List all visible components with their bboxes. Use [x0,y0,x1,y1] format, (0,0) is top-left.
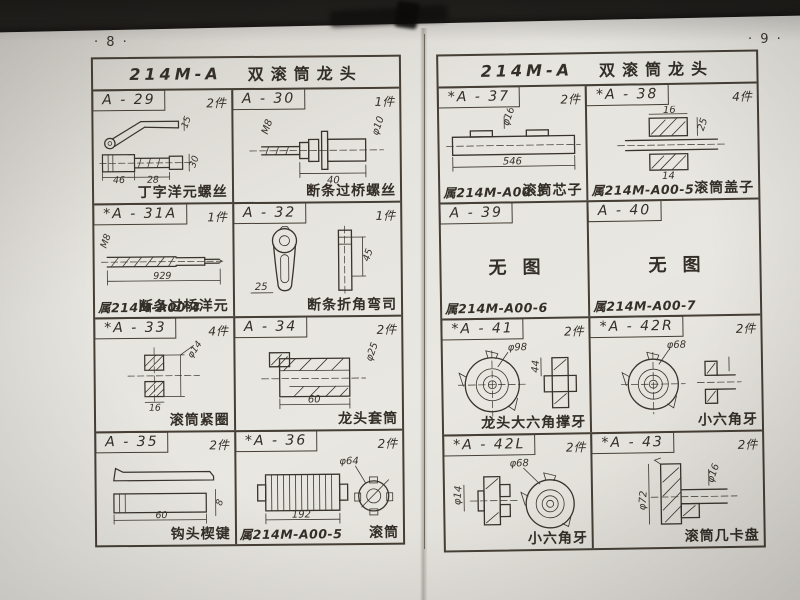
part-drawing-a37: φ16 546 [442,107,583,181]
dim-label: 44 [530,360,542,373]
no-drawing-note: 无图 [441,252,588,280]
part-cell-a34: A - 34 2件 φ25 60 龙头套筒 [235,317,402,430]
part-name: 断条折角弯司 [307,294,397,315]
part-code: *A - 43 [591,432,674,454]
part-cell-a35: A - 35 2件 60 8 钩头楔键 [96,432,237,545]
part-cell-a30: A - 30 1件 M8 φ10 40 断条过桥螺丝 [233,89,400,202]
part-cell-a29: A - 29 2件 15 [93,90,234,203]
part-qty: 2件 [378,435,398,452]
dim-label: φ14 [452,485,464,505]
dim-label: 45 [361,247,376,263]
dim-label: M8 [260,118,275,136]
parts-row-3: *A - 41 2件 φ98 44 龙头大六角撑牙 [442,316,762,437]
part-code: *A - 33 [94,318,177,340]
parts-row-1: *A - 37 2件 φ16 546 属214M-A00-5 滚筒芯子 *A -… [439,84,759,205]
part-name: 断条过桥螺丝 [306,180,396,201]
part-qty: 2件 [737,436,757,453]
dim-label: φ14 [185,339,204,360]
dim-label: 60 [308,394,321,405]
part-cell-a36: *A - 36 2件 φ64 192 属214M-A00-5 [236,431,403,544]
part-code: *A - 42L [443,434,535,456]
dim-label: 15 [179,115,193,130]
part-qty: 2件 [206,94,226,111]
page-title: 214M-A 双滚筒龙头 [93,57,399,92]
part-code: A - 32 [233,202,307,224]
part-drawing-a35: 60 8 [100,453,231,528]
catalog-page-9: 214M-A 双滚筒龙头 *A - 37 2件 φ16 546 属214M-A0… [436,50,766,553]
part-cell-a42l: *A - 42L 2件 φ14 φ68 [444,434,594,550]
part-code: *A - 42R [590,316,684,338]
part-name: 滚筒紧圈 [170,409,230,430]
part-cell-a40: A - 40 无图 属214M-A00-7 [589,200,761,317]
part-cell-a42r: *A - 42R 2件 φ68 [591,316,763,433]
part-name: 小六角牙 [698,409,758,430]
part-qty: 4件 [732,88,752,105]
dim-label: φ16 [705,462,722,484]
dim-label: 46 [113,175,125,186]
part-qty: 2件 [560,90,580,107]
belongs-to-assembly: 属214M-A00-5 [591,179,694,200]
parts-row-3: *A - 33 4件 φ14 16 滚筒紧圈 [95,317,402,434]
part-drawing-a29: 15 46 28 30 [97,111,228,186]
part-qty: 2件 [209,436,229,453]
part-name: 丁字洋元螺丝 [138,181,228,202]
dim-label: φ64 [339,456,358,467]
part-cell-a33: *A - 33 4件 φ14 16 滚筒紧圈 [95,318,236,431]
dim-label: φ98 [508,342,527,353]
part-qty: 4件 [208,322,228,339]
part-qty: 2件 [377,321,397,338]
part-name: 钩头楔键 [171,523,231,544]
part-qty: 2件 [566,438,586,455]
part-code: A - 30 [232,88,306,110]
part-name: 断条过桥洋元 [139,295,229,316]
part-code: A - 35 [95,432,169,454]
title-model-code: 214M-A [481,60,574,80]
part-drawing-a36: φ64 192 [243,452,396,527]
staple-mark [394,1,419,30]
belongs-to-assembly: 属214M-A00-7 [593,295,696,316]
part-qty: 1件 [207,208,227,225]
part-drawing-a30: M8 φ10 40 [241,110,392,185]
dim-label: φ68 [510,458,529,469]
page-number-left: · 8 · [94,35,129,50]
part-qty: 2件 [736,320,756,337]
part-code: *A - 37 [438,86,521,108]
part-code: A - 40 [588,200,662,222]
part-drawing-a42l: φ14 φ68 [448,455,589,533]
part-cell-a37: *A - 37 2件 φ16 546 属214M-A00-5 滚筒芯子 [439,86,589,202]
center-fold-line [424,34,425,549]
part-cell-a31a: *A - 31A 1件 M8 929 属214M-A00-4 断条过桥洋元 [94,204,235,317]
part-name: 龙头套筒 [338,408,398,429]
dim-label: 16 [663,105,676,116]
dim-label: 25 [696,117,711,133]
part-code: *A - 31A [93,204,187,226]
parts-row-4: A - 35 2件 60 8 钩头楔键 *A - 36 2件 [96,431,403,546]
scanned-parts-catalog-photo: · 8 · · 9 · 214M-A 双滚筒龙头 A - 29 2件 15 [0,0,800,600]
dim-label: φ72 [637,490,649,510]
page-number-right: · 9 · [748,32,783,47]
dim-label: φ68 [667,340,686,351]
part-qty: 1件 [376,207,396,224]
dim-label: φ16 [501,107,518,127]
part-cell-a43: *A - 43 2件 φ72 φ16 滚筒几卡盘 [592,431,764,548]
catalog-page-8: 214M-A 双滚筒龙头 A - 29 2件 15 [91,55,405,548]
belongs-to-assembly: 属214M-A00-5 [240,523,343,543]
no-drawing-note: 无图 [589,250,759,279]
part-code: A - 29 [92,90,166,112]
part-drawing-a43: φ72 φ16 [603,453,754,531]
dim-label: φ10 [370,115,387,137]
part-code: *A - 36 [235,430,318,452]
parts-row-2: A - 39 无图 属214M-A00-6 A - 40 无图 属214M-A0… [440,200,760,321]
part-qty: 2件 [564,322,584,339]
part-cell-a32: A - 32 1件 45 25 断条折角弯司 [234,203,401,316]
dim-label: φ25 [364,341,381,363]
parts-row-1: A - 29 2件 15 [93,89,400,206]
parts-row-4: *A - 42L 2件 φ14 φ68 [444,431,764,550]
part-qty: 1件 [375,93,395,110]
dim-label: 546 [503,156,522,167]
dim-label: 929 [153,271,171,282]
dim-label: 25 [255,282,268,293]
part-code: A - 39 [439,202,513,224]
part-drawing-a32: 45 25 [242,224,393,299]
dim-label: 16 [149,403,161,414]
part-cell-a38: *A - 38 4件 16 25 14 属214M-A00-5 滚筒盖子 [587,84,759,201]
dim-label: M8 [98,233,113,250]
title-model-name: 双滚筒龙头 [599,55,714,81]
part-drawing-a31a: M8 929 [97,225,230,296]
title-model-name: 双滚筒龙头 [248,60,363,85]
part-name: 滚筒芯子 [522,179,582,200]
part-drawing-a38: 16 25 14 [597,105,748,181]
part-cell-a41: *A - 41 2件 φ98 44 龙头大六角撑牙 [442,318,592,434]
part-name: 龙头大六角撑牙 [481,411,586,433]
part-name: 滚筒几卡盘 [685,525,760,546]
belongs-to-assembly: 属214M-A00-6 [445,297,548,318]
part-drawing-a42r: φ68 [601,337,752,415]
part-drawing-a41: φ98 44 [446,339,587,417]
part-drawing-a33: φ14 16 [99,339,230,414]
part-name: 滚筒 [369,522,399,542]
part-drawing-a34: φ25 60 [243,338,394,413]
part-cell-a39: A - 39 无图 属214M-A00-6 [440,202,590,318]
part-name: 小六角牙 [528,527,588,548]
part-name: 滚筒盖子 [694,177,754,198]
dim-label: 60 [155,510,167,521]
page-title: 214M-A 双滚筒龙头 [438,52,756,89]
dim-label: 192 [292,509,311,520]
part-code: A - 34 [234,316,308,338]
title-model-code: 214M-A [129,64,222,84]
part-code: *A - 41 [441,318,524,340]
parts-row-2: *A - 31A 1件 M8 929 属214M-A00-4 断条过桥洋元 [94,203,401,320]
part-code: *A - 38 [586,84,669,106]
